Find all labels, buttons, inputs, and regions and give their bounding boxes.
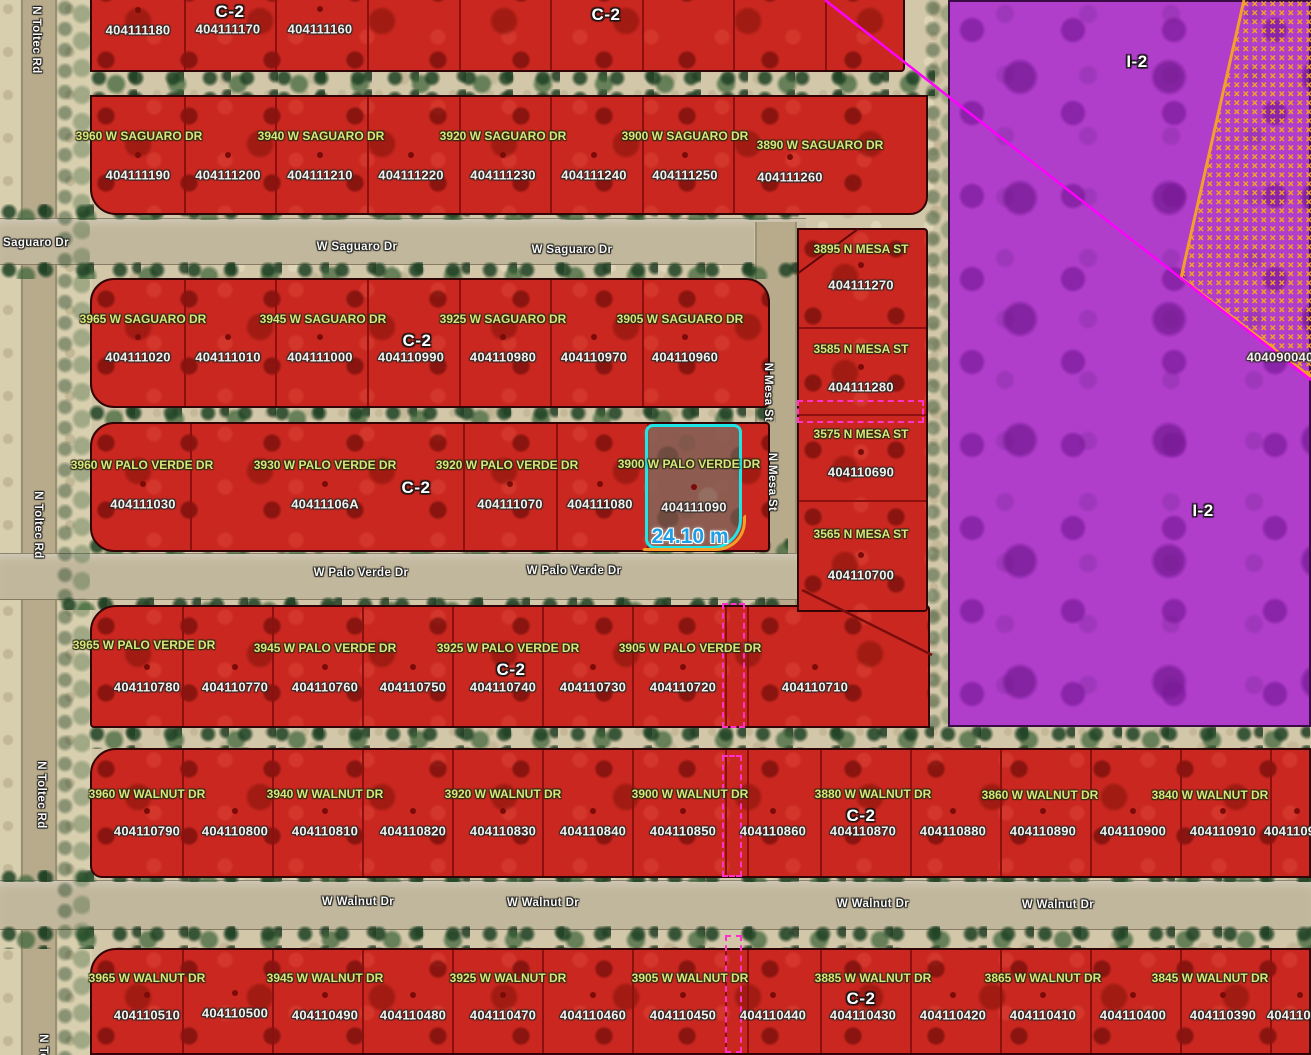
parcel-center-dot bbox=[500, 808, 506, 814]
parcel-divider bbox=[182, 750, 184, 876]
street-label: N Mesa St bbox=[762, 363, 774, 422]
parcel-apn-label: 404110510 bbox=[114, 1008, 180, 1023]
walnut-street[interactable] bbox=[0, 880, 1311, 930]
parcel-divider bbox=[799, 500, 926, 502]
parcel-divider bbox=[1270, 950, 1272, 1053]
block-saguaro-north[interactable] bbox=[90, 95, 928, 215]
address-label: 3925 W SAGUARO DR bbox=[440, 312, 567, 326]
parcel-apn-label: 404111210 bbox=[287, 168, 352, 183]
parcel-center-dot bbox=[682, 152, 688, 158]
parcel-divider bbox=[542, 607, 544, 726]
parcel-center-dot bbox=[135, 152, 141, 158]
parcel-center-dot bbox=[858, 449, 864, 455]
parcel-apn-label: 404111220 bbox=[378, 168, 443, 183]
parcel-apn-label: 404110740 bbox=[470, 680, 536, 695]
zoning-label: C-2 bbox=[402, 478, 431, 498]
parcel-apn-label: 404111240 bbox=[561, 168, 626, 183]
address-label: 3940 W SAGUARO DR bbox=[258, 129, 385, 143]
parcel-divider bbox=[542, 750, 544, 876]
parcel-apn-label: 404110910 bbox=[1190, 824, 1256, 839]
parcel-center-dot bbox=[144, 992, 150, 998]
parcel-apn-label: 404111280 bbox=[828, 380, 893, 395]
parcel-divider bbox=[184, 280, 186, 406]
parcel-center-dot bbox=[770, 808, 776, 814]
parcel-center-dot bbox=[408, 152, 414, 158]
parcel-center-dot bbox=[232, 664, 238, 670]
address-label: 3895 N MESA ST bbox=[814, 242, 909, 256]
parcel-divider bbox=[275, 97, 277, 213]
parcel-center-dot bbox=[507, 481, 513, 487]
parcel-center-dot bbox=[322, 808, 328, 814]
parcel-divider bbox=[820, 950, 822, 1053]
parcel-divider bbox=[1000, 750, 1002, 876]
parcel-divider bbox=[825, 0, 827, 70]
parcel-center-dot bbox=[1130, 992, 1136, 998]
parcel-apn-label: 404111080 bbox=[567, 497, 632, 512]
parcel-divider bbox=[463, 424, 465, 550]
parcel-apn-label: 404110890 bbox=[1010, 824, 1076, 839]
address-label: 3945 W WALNUT DR bbox=[267, 971, 384, 985]
address-label: 3900 W WALNUT DR bbox=[632, 787, 749, 801]
address-label: 3960 W SAGUARO DR bbox=[76, 129, 203, 143]
parcel-divider bbox=[182, 950, 184, 1053]
parcel-divider bbox=[452, 950, 454, 1053]
parcel-apn-label: 404110710 bbox=[782, 680, 848, 695]
address-label: 3920 W PALO VERDE DR bbox=[436, 458, 578, 472]
parcel-center-dot bbox=[317, 152, 323, 158]
parcel-divider bbox=[275, 0, 277, 70]
parcel-center-dot bbox=[1220, 992, 1226, 998]
parcel-center-dot bbox=[1220, 808, 1226, 814]
parcel-apn-label: 404110990 bbox=[378, 350, 444, 365]
parcel-center-dot bbox=[322, 664, 328, 670]
parcel-divider bbox=[642, 97, 644, 213]
parcel-divider bbox=[632, 607, 634, 726]
address-label: 3575 N MESA ST bbox=[814, 427, 909, 441]
parcel-apn-label: 404111200 bbox=[195, 168, 260, 183]
block-walnut-south[interactable] bbox=[90, 948, 1311, 1055]
street-label: W Walnut Dr bbox=[837, 898, 909, 910]
parcel-center-dot bbox=[232, 990, 238, 996]
parcel-divider bbox=[362, 950, 364, 1053]
street-label: W Palo Verde Dr bbox=[527, 565, 622, 577]
parcel-apn-label: 404110960 bbox=[652, 350, 718, 365]
parcel-apn-label: 404110900 bbox=[1100, 824, 1166, 839]
parcel-center-dot bbox=[144, 808, 150, 814]
parcel-apn-label: 404111000 bbox=[287, 350, 352, 365]
parcel-divider bbox=[1270, 750, 1272, 876]
address-label: 3905 W WALNUT DR bbox=[632, 971, 749, 985]
parcel-center-dot bbox=[135, 7, 141, 13]
parcel-divider bbox=[550, 0, 552, 70]
parcel-center-dot bbox=[410, 664, 416, 670]
parcel-divider bbox=[799, 327, 926, 329]
parcel-center-dot bbox=[322, 481, 328, 487]
street-label: N Toltec Rd bbox=[30, 6, 42, 73]
parcel-apn-label: 404110430 bbox=[830, 1008, 896, 1023]
parcel-apn-label: 404110980 bbox=[470, 350, 536, 365]
parcel-center-dot bbox=[591, 152, 597, 158]
parcel-divider bbox=[820, 750, 822, 876]
parcel-center-dot bbox=[680, 808, 686, 814]
address-label: 3840 W WALNUT DR bbox=[1152, 788, 1269, 802]
address-label: 3960 W PALO VERDE DR bbox=[71, 458, 213, 472]
parcel-divider bbox=[367, 0, 369, 70]
parcel-apn-label: 404110970 bbox=[561, 350, 627, 365]
parcel-apn-label: 404110770 bbox=[202, 680, 268, 695]
parcel-center-dot bbox=[680, 664, 686, 670]
address-label: 3890 W SAGUARO DR bbox=[757, 138, 884, 152]
parcel-divider bbox=[182, 607, 184, 726]
parcel-center-dot bbox=[950, 992, 956, 998]
parcel-apn-label: 404111030 bbox=[110, 497, 175, 512]
parcel-divider bbox=[1090, 950, 1092, 1053]
parcel-apn-label: 404111250 bbox=[652, 168, 717, 183]
street-label: W Palo Verde Dr bbox=[314, 567, 409, 579]
parcel-center-dot bbox=[140, 481, 146, 487]
address-label: 3880 W WALNUT DR bbox=[815, 787, 932, 801]
parcel-apn-label: 404110700 bbox=[828, 568, 894, 583]
parcel-center-dot bbox=[225, 152, 231, 158]
parcel-divider bbox=[632, 750, 634, 876]
parcel-center-dot bbox=[225, 334, 231, 340]
address-label: 3865 W WALNUT DR bbox=[985, 971, 1102, 985]
parcel-center-dot bbox=[950, 808, 956, 814]
selection-graphic-box bbox=[722, 755, 742, 877]
street-label: W Walnut Dr bbox=[507, 897, 579, 909]
parcel-apn-label: 404110460 bbox=[560, 1008, 626, 1023]
parcel-apn-label: 404110830 bbox=[470, 824, 536, 839]
parcel-apn-label: 404110420 bbox=[920, 1008, 986, 1023]
parcel-center-dot bbox=[590, 992, 596, 998]
parcel-apn-label: 404111180 bbox=[106, 23, 171, 38]
parcel-center-dot bbox=[500, 152, 506, 158]
parcel-apn-label: 404110780 bbox=[114, 680, 180, 695]
parcel-apn-label: 404110750 bbox=[380, 680, 446, 695]
vegetation-strip bbox=[0, 262, 808, 279]
street-label: N Toltec Rd bbox=[37, 1034, 49, 1055]
selection-graphic-box bbox=[797, 400, 924, 423]
saguaro-street[interactable] bbox=[0, 218, 806, 265]
parcel-center-dot bbox=[691, 484, 697, 490]
parcel-apn-label: 404111170 bbox=[196, 22, 261, 37]
parcel-apn-label: 404110810 bbox=[292, 824, 358, 839]
parcel-apn-label: 404110820 bbox=[380, 824, 446, 839]
parcel-divider bbox=[1180, 950, 1182, 1053]
zoning-label: C-2 bbox=[497, 660, 526, 680]
parcel-divider bbox=[459, 280, 461, 406]
address-label: 3925 W WALNUT DR bbox=[450, 971, 567, 985]
parcel-center-dot bbox=[858, 364, 864, 370]
parcel-divider bbox=[367, 97, 369, 213]
parcel-apn-label: 404110490 bbox=[292, 1008, 358, 1023]
parcel-apn-label: 404110790 bbox=[114, 824, 180, 839]
address-label: 3920 W SAGUARO DR bbox=[440, 129, 567, 143]
vegetation-strip bbox=[0, 926, 1311, 949]
parcel-divider bbox=[452, 750, 454, 876]
parcel-divider bbox=[272, 750, 274, 876]
parcel-center-dot bbox=[590, 664, 596, 670]
vegetation-strip bbox=[56, 0, 90, 1055]
parcel-apn-label: 404110390 bbox=[1190, 1008, 1256, 1023]
parcel-apn-label: 404111160 bbox=[288, 22, 353, 37]
zoning-label: C-2 bbox=[847, 989, 876, 1009]
address-label: 3585 N MESA ST bbox=[814, 342, 909, 356]
zoning-label: I-2 bbox=[1126, 52, 1147, 72]
parcel-divider bbox=[556, 424, 558, 550]
parcel-divider bbox=[642, 0, 644, 70]
address-label: 3930 W PALO VERDE DR bbox=[254, 458, 396, 472]
parcel-center-dot bbox=[1040, 992, 1046, 998]
gis-map-canvas[interactable]: 24.10 m 40411118040411117040411116040411… bbox=[0, 0, 1311, 1055]
parcel-divider bbox=[272, 950, 274, 1053]
street-label: W Saguaro Dr bbox=[532, 244, 613, 256]
parcel-center-dot bbox=[135, 334, 141, 340]
street-label: N Mesa St bbox=[766, 453, 778, 512]
selection-graphic-box bbox=[725, 935, 742, 1053]
address-label: 3960 W WALNUT DR bbox=[89, 787, 206, 801]
parcel-apn-label: 404110690 bbox=[828, 465, 894, 480]
parcel-center-dot bbox=[680, 992, 686, 998]
address-label: 3900 W PALO VERDE DR bbox=[618, 457, 760, 471]
parcel-divider bbox=[362, 607, 364, 726]
parcel-center-dot bbox=[597, 481, 603, 487]
parcel-center-dot bbox=[317, 6, 323, 12]
address-label: 3845 W WALNUT DR bbox=[1152, 971, 1269, 985]
parcel-divider bbox=[550, 280, 552, 406]
parcel-apn-label: 404110500 bbox=[202, 1006, 268, 1021]
zoning-label: C-2 bbox=[216, 2, 245, 22]
parcel-center-dot bbox=[144, 664, 150, 670]
street-label: W Walnut Dr bbox=[322, 896, 394, 908]
parcel-apn-label: 404111190 bbox=[106, 168, 171, 183]
parcel-divider bbox=[1000, 950, 1002, 1053]
parcel-divider bbox=[733, 0, 735, 70]
address-label: 3900 W SAGUARO DR bbox=[622, 129, 749, 143]
parcel-divider bbox=[747, 950, 749, 1053]
parcel-divider bbox=[1090, 750, 1092, 876]
parcel-apn-label: 404110880 bbox=[920, 824, 986, 839]
address-label: 3905 W SAGUARO DR bbox=[617, 312, 744, 326]
parcel-apn-label: 404110920 bbox=[1264, 824, 1311, 839]
measurement-label: 24.10 m bbox=[651, 525, 728, 549]
parcel-apn-label: 404111270 bbox=[828, 278, 893, 293]
vegetation-strip bbox=[88, 726, 1311, 749]
parcel-apn-label: 404110380 bbox=[1267, 1008, 1311, 1023]
address-label: 3965 W PALO VERDE DR bbox=[73, 638, 215, 652]
street-label: N Toltec Rd bbox=[35, 761, 47, 828]
parcel-center-dot bbox=[410, 992, 416, 998]
street-label: W Saguaro Dr bbox=[317, 241, 398, 253]
parcel-apn-label: 404111260 bbox=[757, 170, 822, 185]
parcel-center-dot bbox=[232, 808, 238, 814]
parcel-divider bbox=[367, 280, 369, 406]
parcel-center-dot bbox=[812, 664, 818, 670]
street-label: Saguaro Dr bbox=[3, 237, 69, 249]
parcel-apn-label: 404110480 bbox=[380, 1008, 446, 1023]
parcel-divider bbox=[459, 97, 461, 213]
parcel-apn-label: 404111010 bbox=[195, 350, 260, 365]
parcel-divider bbox=[184, 97, 186, 213]
vegetation-strip bbox=[90, 70, 935, 96]
address-label: 3905 W PALO VERDE DR bbox=[619, 641, 761, 655]
parcel-apn-label: 404090040 bbox=[1247, 350, 1311, 365]
parcel-apn-label: 404110860 bbox=[740, 824, 806, 839]
parcel-apn-label: 404111070 bbox=[477, 497, 542, 512]
parcel-divider bbox=[190, 424, 192, 550]
parcel-apn-label: 404110400 bbox=[1100, 1008, 1166, 1023]
parcel-divider bbox=[733, 97, 735, 213]
parcel-divider bbox=[272, 607, 274, 726]
zoning-label: I-2 bbox=[1192, 501, 1213, 521]
parcel-divider bbox=[362, 750, 364, 876]
parcel-divider bbox=[452, 607, 454, 726]
parcel-apn-label: 404110440 bbox=[740, 1008, 806, 1023]
parcel-center-dot bbox=[410, 808, 416, 814]
address-label: 3885 W WALNUT DR bbox=[815, 971, 932, 985]
street-label: W Walnut Dr bbox=[1022, 899, 1094, 911]
parcel-apn-label: 404110850 bbox=[650, 824, 716, 839]
parcel-center-dot bbox=[1297, 992, 1303, 998]
parcel-apn-label: 404111230 bbox=[470, 168, 535, 183]
parcel-apn-label: 404110450 bbox=[650, 1008, 716, 1023]
parcel-apn-label: 404110840 bbox=[560, 824, 626, 839]
parcel-divider bbox=[747, 607, 749, 726]
parcel-divider bbox=[910, 750, 912, 876]
parcel-center-dot bbox=[1130, 808, 1136, 814]
parcel-center-dot bbox=[590, 808, 596, 814]
parcel-center-dot bbox=[682, 334, 688, 340]
parcel-center-dot bbox=[787, 154, 793, 160]
parcel-divider bbox=[542, 950, 544, 1053]
zoning-label: C-2 bbox=[592, 5, 621, 25]
parcel-apn-label: 404111020 bbox=[105, 350, 170, 365]
address-label: 3945 W SAGUARO DR bbox=[260, 312, 387, 326]
parcel-divider bbox=[1180, 750, 1182, 876]
parcel-apn-label: 404110410 bbox=[1010, 1008, 1076, 1023]
parcel-divider bbox=[632, 950, 634, 1053]
zoning-label: C-2 bbox=[403, 331, 432, 351]
address-label: 3860 W WALNUT DR bbox=[982, 788, 1099, 802]
address-label: 3920 W WALNUT DR bbox=[445, 787, 562, 801]
parcel-center-dot bbox=[591, 334, 597, 340]
parcel-center-dot bbox=[322, 992, 328, 998]
parcel-divider bbox=[275, 280, 277, 406]
parcel-center-dot bbox=[858, 262, 864, 268]
address-label: 3965 W SAGUARO DR bbox=[80, 312, 207, 326]
parcel-center-dot bbox=[1294, 808, 1300, 814]
parcel-divider bbox=[910, 950, 912, 1053]
parcel-divider bbox=[747, 750, 749, 876]
selection-graphic-box bbox=[722, 603, 745, 728]
parcel-divider bbox=[184, 0, 186, 70]
address-label: 3925 W PALO VERDE DR bbox=[437, 641, 579, 655]
parcel-divider bbox=[459, 0, 461, 70]
address-label: 3565 N MESA ST bbox=[814, 527, 909, 541]
parcel-center-dot bbox=[500, 334, 506, 340]
parcel-apn-label: 404110720 bbox=[650, 680, 716, 695]
zoning-label: C-2 bbox=[847, 806, 876, 826]
parcel-center-dot bbox=[500, 992, 506, 998]
parcel-center-dot bbox=[317, 334, 323, 340]
parcel-apn-label: 404110470 bbox=[470, 1008, 536, 1023]
street-label: N Toltec Rd bbox=[32, 491, 44, 558]
parcel-apn-label: 404110730 bbox=[560, 680, 626, 695]
parcel-center-dot bbox=[770, 992, 776, 998]
address-label: 3965 W WALNUT DR bbox=[89, 971, 206, 985]
parcel-apn-label: 40411106A bbox=[291, 497, 359, 512]
address-label: 3945 W PALO VERDE DR bbox=[254, 641, 396, 655]
parcel-divider bbox=[550, 97, 552, 213]
parcel-apn-label: 404110800 bbox=[202, 824, 268, 839]
block-walnut-north[interactable] bbox=[90, 748, 1311, 878]
parcel-center-dot bbox=[858, 552, 864, 558]
parcel-apn-label: 404110760 bbox=[292, 680, 358, 695]
parcel-center-dot bbox=[1040, 808, 1046, 814]
address-label: 3940 W WALNUT DR bbox=[267, 787, 384, 801]
parcel-divider bbox=[642, 280, 644, 406]
parcel-apn-label: 404111090 bbox=[661, 500, 726, 515]
